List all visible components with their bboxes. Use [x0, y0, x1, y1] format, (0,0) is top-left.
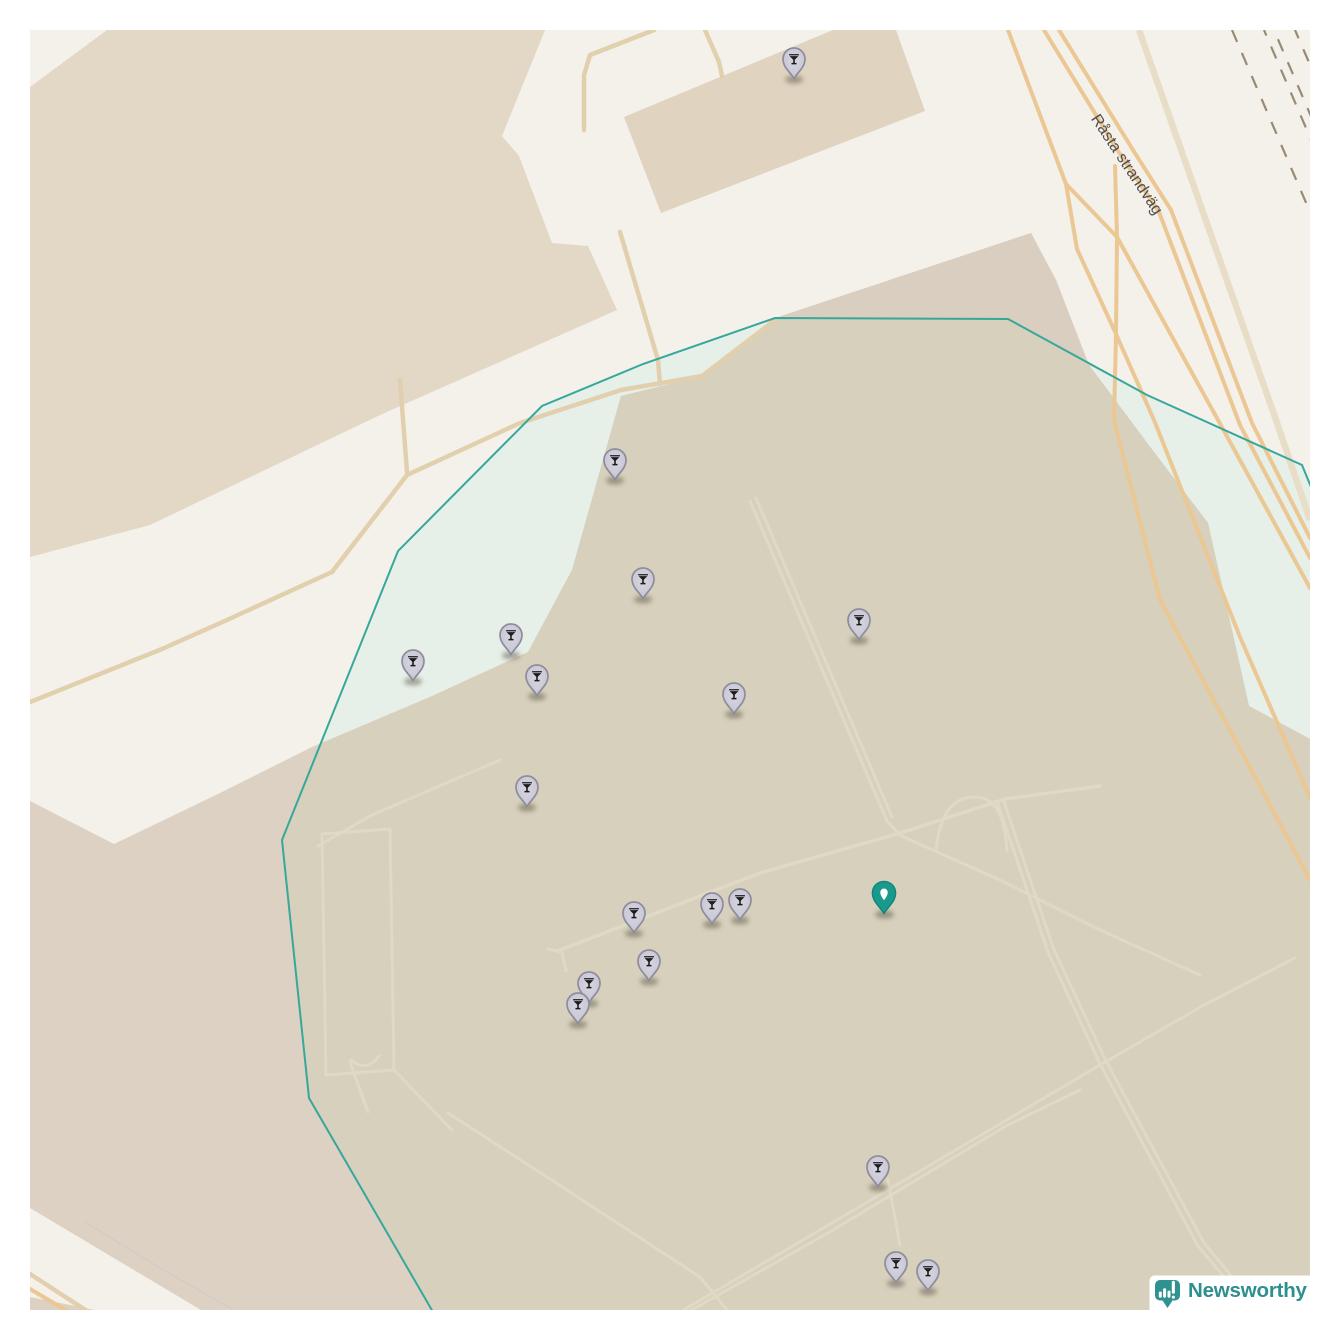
svg-text:Newsworthy: Newsworthy: [1188, 1279, 1308, 1302]
